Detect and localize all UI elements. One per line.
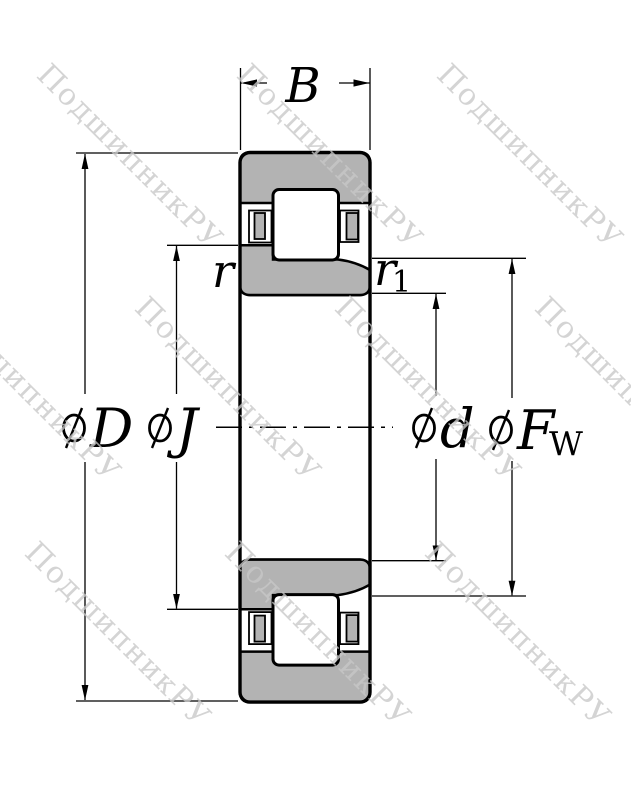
label-phi-d: d — [414, 397, 475, 460]
bearing-drawing-canvas: B D J — [0, 0, 631, 792]
label-r1-subscript: 1 — [392, 265, 411, 300]
roller-top — [273, 190, 339, 261]
arrowhead-right — [354, 79, 370, 86]
label-B: B — [284, 58, 320, 114]
arrowhead-up — [173, 246, 180, 261]
arrowhead-down — [82, 685, 89, 700]
label-phi-Fw: F W — [491, 399, 584, 463]
top-cross-section — [240, 153, 370, 296]
bearing-cross-section-svg: B D J — [0, 0, 631, 792]
label-phi-J: J — [150, 397, 202, 460]
label-r1: r 1 — [374, 242, 411, 300]
label-D: D — [89, 397, 133, 460]
arrowhead-down — [509, 581, 516, 596]
label-r: r — [212, 244, 237, 298]
bottom-cross-section — [240, 560, 370, 703]
cage-bar-right — [347, 213, 359, 240]
cage-bar-left — [255, 616, 266, 642]
diameter-symbol — [491, 410, 512, 450]
arrowhead-up — [82, 154, 89, 169]
arrowhead-up — [509, 259, 516, 274]
cage-bar-left — [255, 213, 266, 239]
arrowhead-up — [433, 294, 440, 309]
arrowhead-left — [241, 79, 257, 86]
diameter-symbol — [414, 408, 435, 448]
label-phi-D: D — [64, 397, 134, 460]
arrowhead-down — [173, 594, 180, 609]
cage-bar-right — [347, 615, 359, 642]
diameter-symbol — [150, 408, 171, 448]
diameter-symbol — [64, 408, 85, 448]
label-F-subscript: W — [549, 424, 583, 463]
roller-bottom — [273, 595, 339, 666]
label-d: d — [440, 397, 475, 460]
arrowhead-down — [433, 546, 440, 561]
